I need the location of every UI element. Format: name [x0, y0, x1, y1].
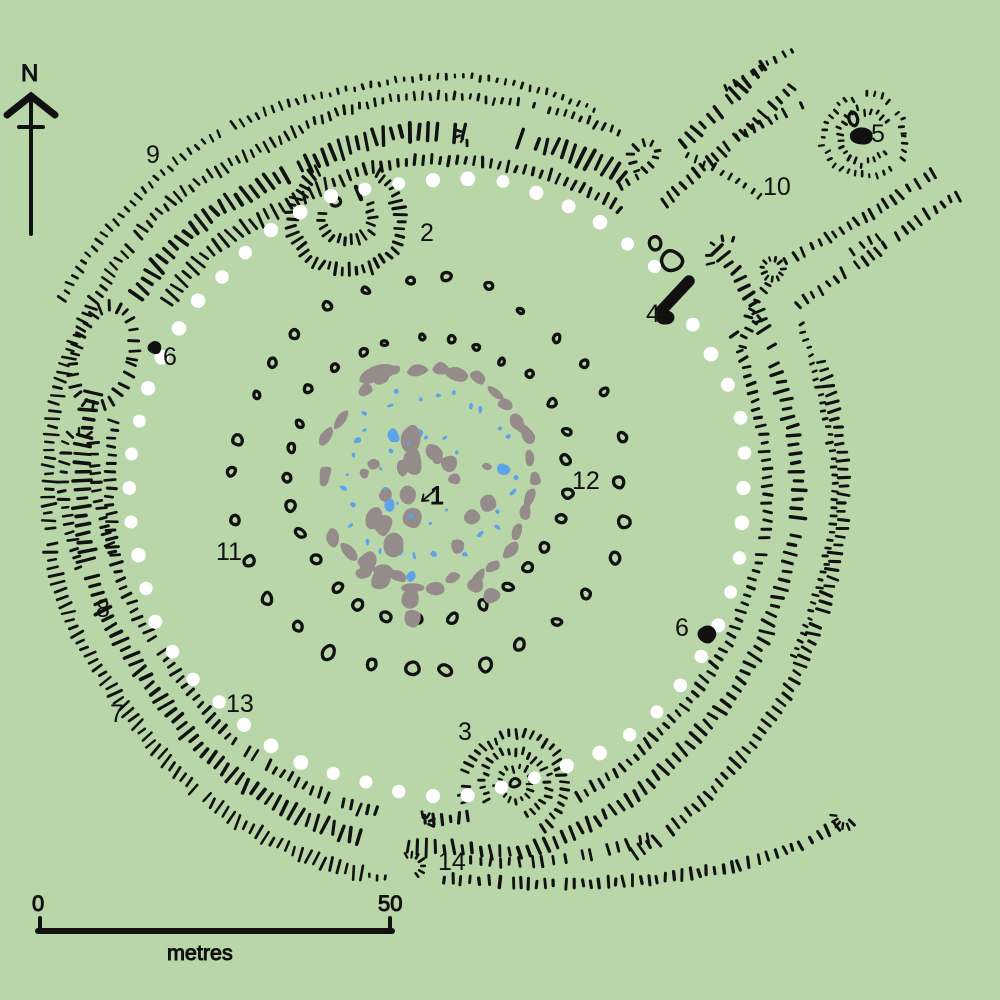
svg-text:9: 9 [146, 141, 160, 169]
svg-text:13: 13 [226, 690, 254, 718]
svg-text:6: 6 [675, 614, 689, 642]
svg-text:N: N [21, 60, 38, 87]
svg-text:6: 6 [163, 343, 177, 371]
svg-text:8: 8 [96, 595, 110, 623]
svg-text:7: 7 [110, 700, 124, 728]
svg-text:1: 1 [430, 482, 444, 510]
svg-text:5: 5 [871, 120, 885, 148]
svg-text:10: 10 [763, 173, 791, 201]
svg-text:4: 4 [646, 300, 660, 328]
svg-text:12: 12 [572, 467, 600, 495]
svg-text:3: 3 [458, 718, 472, 746]
svg-text:50: 50 [378, 891, 402, 916]
svg-text:0: 0 [32, 891, 44, 916]
svg-text:11: 11 [216, 538, 242, 566]
svg-text:14: 14 [438, 848, 466, 876]
svg-text:2: 2 [420, 219, 434, 247]
svg-text:metres: metres [167, 941, 233, 965]
